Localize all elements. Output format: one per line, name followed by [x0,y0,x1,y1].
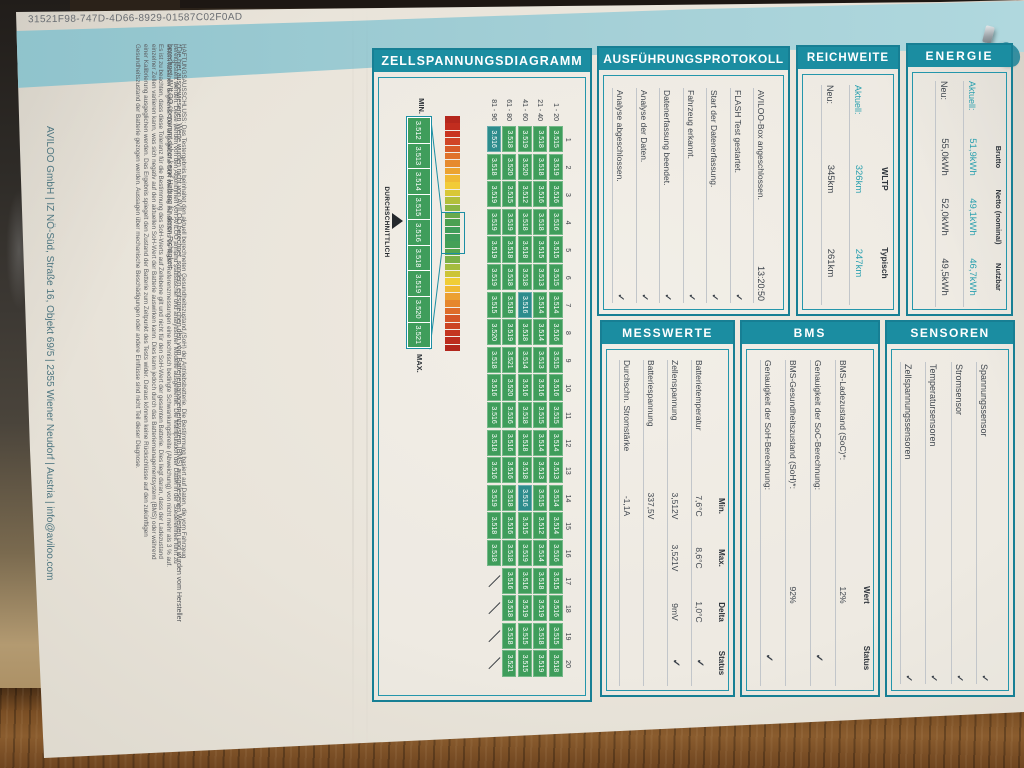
check-icon: ✓ [903,674,914,682]
cell-voltage: 3.518 [487,540,501,566]
cell-voltage: 3.514 [533,540,547,566]
scale-segment [445,116,460,123]
cell-voltage: 3.514 [518,347,532,373]
table-row: Neu:345km261km [821,85,849,305]
row-label: Batteriespannung [646,360,656,480]
table-row: Durchschn. Stromstärke-1,1A [619,360,643,686]
scale-segment [445,337,460,344]
cell-voltage: 3.516 [518,374,532,400]
section-title: SENSOREN [887,322,1013,344]
scale-segment [445,271,460,278]
cell-voltage: 3.518 [533,568,547,594]
row-label: Genauigkeit der SoH-Berechnung: [763,360,773,560]
protocol-row: AVILOO-Box angeschlossen.13:20:50 [754,88,778,303]
row-label: Zellenspannung [670,360,680,480]
cell-voltage: 3.519 [487,485,501,511]
cell-voltage: 3.520 [518,154,532,180]
cell-voltage: 3.515 [533,402,547,428]
cell-voltage: 3.515 [549,236,563,262]
scale-segment [445,256,460,263]
cell-voltage: 3.518 [518,430,532,456]
cell-voltage: 3.518 [518,236,532,262]
cell-voltage: 3.518 [518,457,532,483]
scale-segment [445,182,460,189]
diagram-group-row: 81 - 963.5163.5183.5193.5193.5193.5193.5… [486,84,502,688]
protocol-step-label: Fahrzeug erkannt. [686,90,696,159]
column-number: 14 [564,485,571,513]
value-cell: 46,7kWh [967,247,978,307]
disclaimer-line: einem falschen Ergebnis. Der angegebene … [164,44,172,762]
column-header: Netto (nominal) [991,187,1003,247]
cell-voltage: 3.516 [518,485,532,511]
cell-voltage: 3.518 [487,154,501,180]
cell-voltage: 3.518 [549,650,563,676]
cell-voltage: 3.518 [533,126,547,152]
cell-voltage: 3.518 [533,209,547,235]
cell-voltage: 3.514 [549,430,563,456]
cell-voltage: 3.518 [487,347,501,373]
protocol-step-label: AVILOO-Box angeschlossen. [757,90,767,200]
legend-value: 3.515 [408,195,430,220]
row-label: Aktuell: [853,85,863,137]
protocol-row: Analyse abgeschlossen.✓ [613,88,637,303]
section-energie: ENERGIE BruttoNetto (nominal)NutzbarAktu… [906,43,1013,316]
column-header: Status [860,630,871,686]
scale-segment [445,293,460,300]
cell-voltage: 3.518 [502,540,516,566]
value-cell: 3,512V [670,480,680,532]
scale-segment [445,146,460,153]
cell-voltage: 3.521 [502,347,516,373]
cell-voltage: 3.516 [487,126,501,152]
wert-cell: 92% [788,560,798,630]
document-id: 31521F98-747D-4D66-8929-01587C02F0AD [28,12,243,26]
cell-voltage: 3.518 [533,154,547,180]
column-header: Status [715,640,726,686]
cell-voltage: 3.518 [502,126,516,152]
section-title: ZELLSPANNUNGSDIAGRAMM [374,50,590,72]
cell-voltage: 3.515 [549,568,563,594]
legend-value: 3.512 [408,118,430,143]
scale-segment [445,160,460,167]
cell-voltage: 3.519 [502,319,516,345]
column-number: 18 [564,595,571,623]
cell-voltage: 3.515 [549,347,563,373]
column-header: Min. [715,480,726,532]
column-number: 3 [564,181,571,209]
cell-voltage: 3.514 [533,292,547,318]
scale-segment [445,278,460,285]
value-cell: 9mV [670,584,680,640]
sensor-label: Spannungssensor [980,364,990,437]
disclaimer-line: bereitgestellt werden. Diese werden von … [172,44,180,762]
scale-range-box [441,212,465,254]
protocol-time: 13:20:50 [757,266,767,301]
table-row: BMS-Ladezustand (SoC)*:12% [835,360,860,686]
value-cell: 51,9kWh [967,127,978,187]
cell-voltage: 3.519 [487,264,501,290]
photo-scene: 31521F98-747D-4D66-8929-01587C02F0AD AVI… [0,0,1024,768]
cell-voltage: 3.520 [502,154,516,180]
row-label: Neu: [939,81,949,127]
cell-voltage: 3.518 [487,512,501,538]
column-number: 8 [564,319,571,347]
section-bms: BMS WertStatusBMS-Ladezustand (SoC)*:12%… [740,320,880,697]
row-label: Genauigkeit der SoC-Berechnung: [813,360,823,560]
scale-segment [445,123,460,130]
cell-voltage: 3.515 [549,623,563,649]
value-cell: 247km [853,221,864,305]
scale-segment [445,345,460,352]
legend-value: 3.516 [408,220,430,245]
section-reichweite: REICHWEITE WLTPTypischAktuell:326km247km… [796,45,900,316]
column-number: 4 [564,209,571,237]
cell-voltage: 3.520 [487,319,501,345]
section-title: ENERGIE [908,45,1011,67]
group-label: 81 - 96 [486,84,502,126]
wert-cell: 12% [838,560,848,630]
disclaimer-line: Gesundheitszustand der Batterie gezogen … [134,44,142,762]
cell-voltage: 3.516 [549,209,563,235]
check-icon: ✓ [733,293,744,301]
legend-value: 3.518 [408,246,430,271]
value-cell: 7,6°C [694,480,704,532]
table-header-row: BruttoNetto (nominal)Nutzbar [991,81,1003,307]
cell-voltage: 3.514 [549,292,563,318]
check-icon: ✓ [929,674,940,682]
measurements-frame: Min.Max.DeltaStatusBatterietemperatur7,6… [606,349,729,691]
empty-cell [487,595,501,621]
value-cell: -1,1A [622,480,632,532]
cell-voltage: 3.519 [487,209,501,235]
value-cell: 49,1kWh [967,187,978,247]
cell-voltage: 3.516 [487,402,501,428]
cell-voltage: 3.516 [533,374,547,400]
slash-mark [488,602,500,614]
column-header: WLTP [877,137,889,221]
cell-voltage: 3.519 [487,181,501,207]
value-cell: 261km [825,221,836,305]
column-number: 13 [564,457,571,485]
value-cell: 3,521V [670,532,680,584]
cell-voltage: 3.516 [502,457,516,483]
cell-voltage: 3.518 [502,595,516,621]
table-row: Genauigkeit der SoC-Berechnung:✓ [810,360,835,686]
check-icon: ✓ [954,674,965,682]
cell-voltage: 3.519 [533,595,547,621]
section-zellspannungsdiagramm: ZELLSPANNUNGSDIAGRAMM 123456789101112131… [372,48,592,702]
protocol-row: FLASH Test gestartet.✓ [730,88,754,303]
cell-voltage: 3.518 [518,209,532,235]
slash-mark [488,657,500,669]
cell-voltage: 3.515 [549,126,563,152]
sensor-label: Stromsensor [954,364,964,415]
cell-voltage: 3.519 [549,154,563,180]
protocol-row: Datenerfassung beendet.✓ [660,88,684,303]
cell-voltage: 3.519 [502,209,516,235]
scale-segment [445,131,460,138]
protocol-frame: AVILOO-Box angeschlossen.13:20:50FLASH T… [603,75,784,310]
value-cell: 326km [853,137,864,221]
column-number: 2 [564,154,571,182]
cell-voltage: 3.516 [518,568,532,594]
check-icon: ✓ [980,674,991,682]
value-cell: 345km [825,137,836,221]
cell-voltage: 3.515 [487,292,501,318]
empty-cell [487,623,501,649]
scale-segment [445,308,460,315]
row-label: BMS-Gesundheitszustand (SoH)*: [788,360,798,560]
value-cell: 1,0°C [694,584,704,640]
scale-segment [445,138,460,145]
legend-value: 3.513 [408,144,430,169]
disclaimer-line: einer Kalibrierung ausgeglichen werden. … [141,44,149,762]
cell-voltage: 3.515 [502,181,516,207]
section-title: MESSWERTE [602,322,733,344]
diagram-column-numbers: 1234567891011121314151617181920 [564,126,578,688]
cell-voltage: 3.519 [518,126,532,152]
cell-voltage: 3.516 [502,568,516,594]
column-number: 9 [564,347,571,375]
row-label: Durchschn. Stromstärke [622,360,632,480]
diagram-frame: 12345678910111213141516171819201 - 203.5… [378,77,586,696]
table-row: Genauigkeit der SoH-Berechnung:✓ [760,360,785,686]
check-icon: ✓ [694,640,705,686]
energy-frame: BruttoNetto (nominal)NutzbarAktuell:51,9… [912,72,1007,310]
table-row: Neu:55,0kWh52,0kWh49,5kWh [935,81,963,307]
sensor-row: Temperatursensoren✓ [926,362,952,684]
cell-voltage: 3.516 [502,512,516,538]
scale-segment [445,315,460,322]
cell-voltage: 3.514 [533,319,547,345]
row-label: BMS-Ladezustand (SoC)*: [838,360,848,560]
cell-voltage: 3.513 [533,347,547,373]
cell-voltage: 3.518 [518,402,532,428]
scale-segment [445,330,460,337]
table-row: Batteriespannung337,5V [643,360,667,686]
check-icon: ✓ [686,293,697,301]
scale-segment [445,190,460,197]
cell-voltage: 3.513 [533,457,547,483]
cell-voltage: 3.512 [533,512,547,538]
value-cell: 49,5kWh [939,247,950,307]
sensor-label: Temperatursensoren [929,364,939,447]
column-number: 10 [564,374,571,402]
scale-segment [445,264,460,271]
scale-segment [445,153,460,160]
protocol-step-label: Datenerfassung beendet. [663,90,673,185]
cell-voltage: 3.519 [487,236,501,262]
column-header: Max. [715,532,726,584]
column-number: 12 [564,430,571,458]
section-title: REICHWEITE [798,47,898,69]
protocol-step-label: Analyse der Daten. [639,90,649,162]
scale-segment [445,168,460,175]
empty-cell [487,650,501,676]
cell-voltage: 3.516 [549,319,563,345]
cell-voltage: 3.518 [518,264,532,290]
check-icon: ✓ [616,293,627,301]
diagram-group-row: 1 - 203.5153.5193.5163.5163.5153.5153.51… [548,84,564,688]
cell-voltage: 3.516 [502,402,516,428]
slash-mark [488,574,500,586]
diagram-group-row: 61 - 803.5183.5203.5153.5193.5183.5183.5… [501,84,517,688]
slash-mark [488,630,500,642]
min-label: MIN. [417,86,426,114]
column-number: 6 [564,264,571,292]
value-cell: 55,0kWh [939,127,950,187]
paper-crease [352,0,354,768]
protocol-row: Analyse der Daten.✓ [636,88,660,303]
table-row: BMS-Gesundheitszustand (SoH)*:92% [785,360,810,686]
max-label: MAX. [415,354,424,373]
column-header: Brutto [991,127,1003,187]
cell-voltage: 3.515 [518,623,532,649]
sensor-row: Zellspannungssensoren✓ [900,362,926,684]
section-sensoren: SENSOREN Spannungssensor✓Stromsensor✓Tem… [885,320,1015,697]
column-number: 16 [564,540,571,568]
table-header-row: Min.Max.DeltaStatus [715,360,726,686]
table-header-row: WLTPTypisch [877,85,889,305]
diagram-group-row: 21 - 403.5183.5183.5163.5183.5153.5133.5… [532,84,548,688]
scale-segment [445,323,460,330]
paper-crease [366,0,368,768]
column-number: 20 [564,650,571,678]
disclaimer-line: einzelner Zellen variieren kann, was sic… [149,44,157,762]
table-header-row: WertStatus [860,360,871,686]
cell-voltage: 3.519 [518,595,532,621]
cell-voltage: 3.513 [533,264,547,290]
legend-value: 3.521 [408,323,430,348]
cell-voltage: 3.516 [549,181,563,207]
column-number: 1 [564,126,571,154]
column-header: Nutzbar [991,247,1003,307]
cell-voltage: 3.515 [533,485,547,511]
column-number: 15 [564,512,571,540]
value-cell: 337,5V [646,480,656,532]
group-label: 1 - 20 [548,84,564,126]
cell-voltage: 3.516 [487,457,501,483]
legend-value: 3.514 [408,169,430,194]
group-label: 41 - 60 [517,84,533,126]
scale-segment [445,175,460,182]
check-icon: ✓ [710,293,721,301]
cell-voltage: 3.516 [549,540,563,566]
average-label: DURCHSCHNITTLICH [383,172,390,272]
sensor-label: Zellspannungssensoren [903,364,913,460]
legend-value: 3.520 [408,297,430,322]
sensors-frame: Spannungssensor✓Stromsensor✓Temperaturse… [891,349,1009,691]
column-number: 17 [564,568,571,596]
column-number: 5 [564,236,571,264]
cell-voltage: 3.516 [518,292,532,318]
table-row: Batterietemperatur7,6°C8,6°C1,0°C✓ [691,360,715,686]
row-label: Neu: [825,85,835,137]
scale-segment [445,300,460,307]
check-icon: ✓ [763,630,774,686]
row-label: Aktuell: [967,81,977,127]
section-title: AUSFÜHRUNGSPROTOKOLL [599,48,788,70]
check-icon: ✓ [663,293,674,301]
column-header: Delta [715,584,726,640]
scale-segment [445,205,460,212]
group-label: 61 - 80 [501,84,517,126]
column-header: Typisch [877,221,889,305]
group-label: 21 - 40 [532,84,548,126]
cell-voltage: 3.515 [549,264,563,290]
bms-frame: WertStatusBMS-Ladezustand (SoC)*:12%Gena… [746,349,874,691]
protocol-step-label: FLASH Test gestartet. [733,90,743,173]
protocol-step-label: Start der Datenerfassung. [710,90,720,187]
cell-voltage: 3.515 [533,236,547,262]
table-row: Aktuell:326km247km [849,85,877,305]
cell-voltage: 3.515 [518,650,532,676]
legend-value: 3.519 [408,271,430,296]
legend-value-bar: 3.5123.5133.5143.5153.5163.5183.5193.520… [406,116,432,349]
cell-voltage: 3.519 [518,540,532,566]
cell-voltage: 3.516 [549,595,563,621]
cell-voltage-diagram: 12345678910111213141516171819201 - 203.5… [378,84,578,688]
column-number: 7 [564,292,571,320]
value-cell: 52,0kWh [939,187,950,247]
cell-voltage: 3.512 [518,181,532,207]
protocol-row: Fahrzeug erkannt.✓ [683,88,707,303]
section-messwerte: MESSWERTE Min.Max.DeltaStatusBatterietem… [600,320,735,697]
cell-voltage: 3.518 [502,485,516,511]
protocol-row: Start der Datenerfassung.✓ [707,88,731,303]
cell-voltage: 3.515 [518,512,532,538]
column-number: 19 [564,623,571,651]
cell-voltage: 3.514 [533,430,547,456]
cell-voltage: 3.516 [533,181,547,207]
cell-voltage: 3.518 [487,430,501,456]
cell-voltage: 3.518 [518,319,532,345]
diagram-group-row: 41 - 603.5193.5203.5123.5183.5183.5183.5… [517,84,533,688]
cell-voltage: 3.518 [502,292,516,318]
cell-voltage: 3.518 [502,623,516,649]
cell-voltage: 3.518 [502,236,516,262]
check-icon: ✓ [670,640,681,686]
section-ausfuehrungsprotokoll: AUSFÜHRUNGSPROTOKOLL AVILOO-Box angeschl… [597,46,790,316]
average-marker-icon [392,213,403,229]
section-title: BMS [742,322,878,344]
cell-voltage: 3.516 [549,374,563,400]
column-number: 11 [564,402,571,430]
cell-voltage: 3.521 [502,650,516,676]
check-icon: ✓ [639,293,650,301]
empty-cell [487,568,501,594]
check-icon: ✓ [813,630,824,686]
cell-voltage: 3.515 [549,402,563,428]
table-row: Aktuell:51,9kWh49,1kWh46,7kWh [963,81,991,307]
cell-voltage: 3.516 [502,430,516,456]
cell-voltage: 3.518 [502,264,516,290]
cell-voltage: 3.519 [533,650,547,676]
report-paper: 31521F98-747D-4D66-8929-01587C02F0AD AVI… [0,0,1024,768]
scale-segment [445,286,460,293]
value-cell: 8,6°C [694,532,704,584]
sensor-row: Spannungssensor✓ [977,362,1003,684]
protocol-step-label: Analyse abgeschlossen. [616,90,626,182]
column-header: Wert [860,560,871,630]
table-row: Zellenspannung3,512V3,521V9mV✓ [667,360,691,686]
sensor-row: Stromsensor✓ [951,362,977,684]
cell-voltage: 3.518 [533,623,547,649]
disclaimer-line: Es ist zu beachten, dass diese Toleranz … [157,44,165,762]
disclaimer-line: HAFTUNGSAUSSCHLUSS: Das Testergebnis bei… [179,44,187,762]
cell-voltage: 3.514 [549,485,563,511]
cell-voltage: 3.513 [549,457,563,483]
